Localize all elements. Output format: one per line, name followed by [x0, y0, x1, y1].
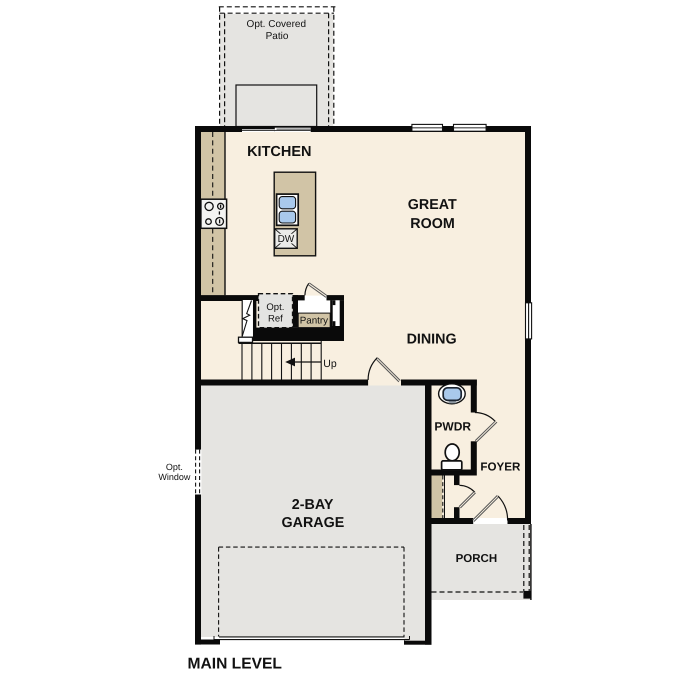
svg-text:ROOM: ROOM	[410, 216, 454, 232]
svg-text:PWDR: PWDR	[434, 420, 471, 434]
svg-text:DINING: DINING	[407, 332, 457, 348]
svg-text:Opt.: Opt.	[166, 462, 183, 472]
svg-text:MAIN LEVEL: MAIN LEVEL	[188, 655, 283, 672]
svg-text:PORCH: PORCH	[456, 553, 498, 565]
svg-text:GARAGE: GARAGE	[282, 515, 345, 531]
svg-text:Opt.: Opt.	[266, 302, 284, 313]
svg-text:KITCHEN: KITCHEN	[247, 144, 311, 160]
svg-text:Ref: Ref	[268, 314, 283, 325]
svg-text:GREAT: GREAT	[408, 197, 457, 213]
svg-text:Patio: Patio	[266, 31, 289, 42]
svg-text:Pantry: Pantry	[300, 316, 328, 327]
svg-text:Window: Window	[158, 472, 191, 482]
svg-text:2-BAY: 2-BAY	[292, 497, 334, 513]
svg-text:FOYER: FOYER	[480, 460, 521, 473]
svg-text:Up: Up	[323, 358, 337, 370]
svg-text:DW: DW	[278, 234, 295, 245]
svg-text:Opt. Covered: Opt. Covered	[247, 19, 306, 30]
